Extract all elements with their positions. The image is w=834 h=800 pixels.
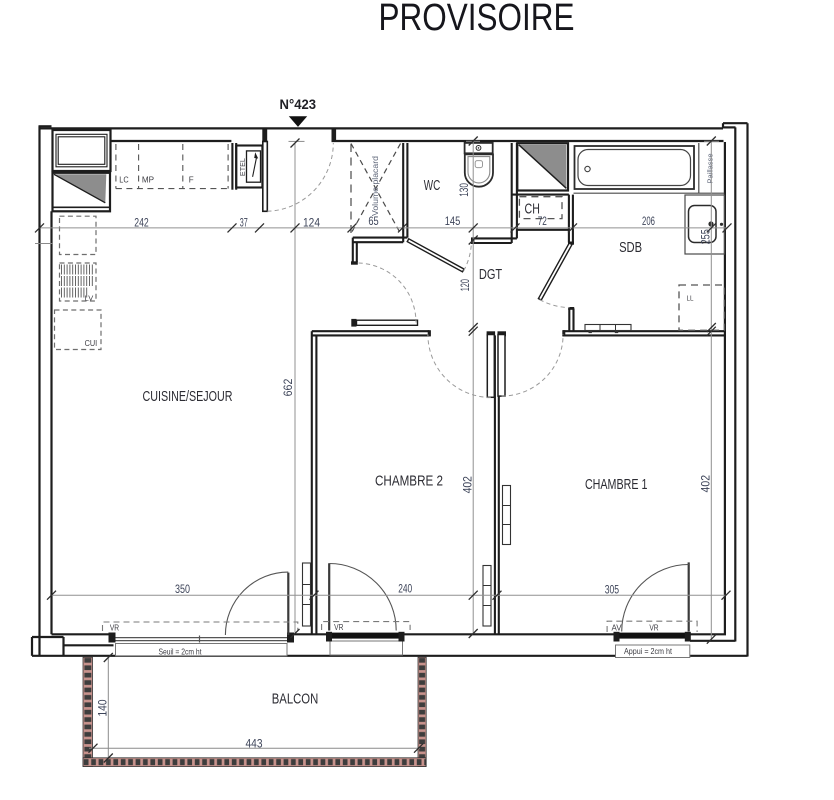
svg-text:350: 350 (175, 582, 190, 596)
svg-text:LV: LV (85, 294, 94, 303)
svg-text:SDB: SDB (619, 239, 642, 256)
svg-text:Appui = 2cm ht: Appui = 2cm ht (624, 647, 673, 656)
svg-text:37: 37 (240, 215, 248, 229)
svg-text:CHAMBRE 2: CHAMBRE 2 (375, 473, 443, 490)
svg-text:255: 255 (698, 229, 712, 244)
svg-text:F: F (189, 175, 194, 184)
svg-text:LL: LL (687, 294, 694, 303)
svg-text:N°423: N°423 (280, 96, 317, 112)
svg-text:130: 130 (457, 183, 471, 197)
svg-text:CUISINE/SEJOUR: CUISINE/SEJOUR (143, 388, 233, 405)
svg-text:Volume placard: Volume placard (371, 156, 380, 216)
svg-text:ETEL: ETEL (238, 158, 247, 176)
svg-text:305: 305 (605, 583, 620, 597)
svg-text:443: 443 (246, 736, 263, 750)
svg-text:Seuil = 2cm ht: Seuil = 2cm ht (159, 647, 203, 656)
svg-text:120: 120 (458, 279, 472, 291)
svg-text:206: 206 (642, 214, 655, 228)
svg-text:PROVISOIRE: PROVISOIRE (379, 0, 575, 39)
svg-text:240: 240 (398, 582, 412, 596)
svg-text:CUI: CUI (85, 339, 98, 348)
svg-text:242: 242 (134, 215, 149, 229)
svg-text:VR: VR (649, 623, 658, 632)
svg-text:MP: MP (142, 175, 154, 184)
svg-text:VR: VR (110, 624, 119, 633)
svg-text:AV: AV (612, 623, 623, 632)
svg-text:Paillasse: Paillasse (705, 154, 714, 184)
svg-text:140: 140 (95, 699, 109, 716)
svg-text:CHAMBRE 1: CHAMBRE 1 (585, 476, 648, 493)
svg-text:65: 65 (368, 214, 379, 228)
svg-text:BALCON: BALCON (272, 690, 319, 707)
svg-text:DGT: DGT (479, 266, 502, 283)
svg-text:CH: CH (525, 200, 540, 217)
svg-text:VR: VR (334, 623, 343, 632)
svg-text:124: 124 (303, 215, 320, 229)
svg-text:402: 402 (699, 475, 713, 493)
svg-text:402: 402 (461, 476, 475, 494)
svg-text:WC: WC (424, 177, 441, 194)
svg-text:145: 145 (445, 214, 461, 228)
svg-text:662: 662 (281, 378, 295, 396)
svg-text:LC: LC (119, 175, 129, 184)
